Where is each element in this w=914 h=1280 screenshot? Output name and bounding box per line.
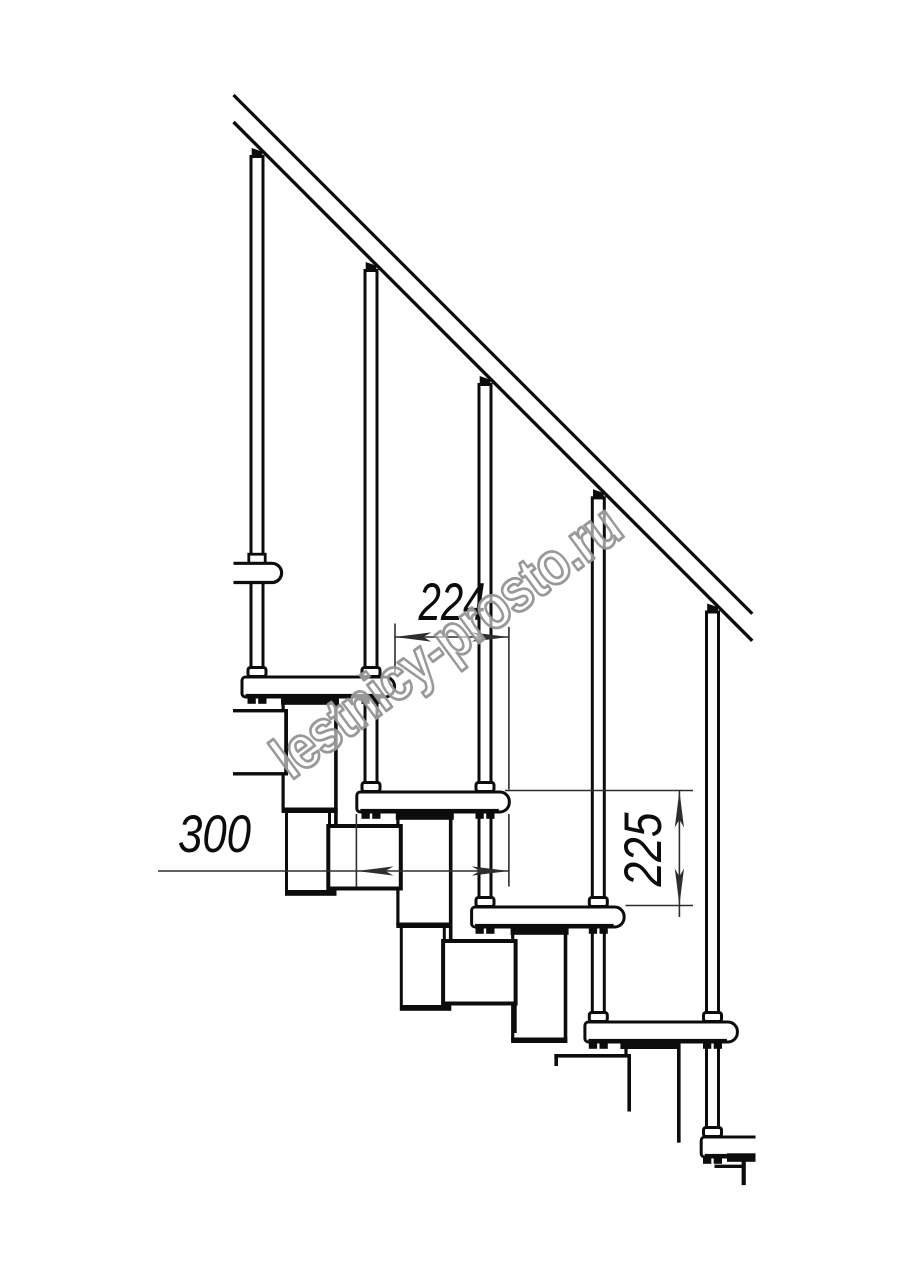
svg-text:300: 300 [178,805,251,864]
svg-text:225: 225 [614,812,673,887]
